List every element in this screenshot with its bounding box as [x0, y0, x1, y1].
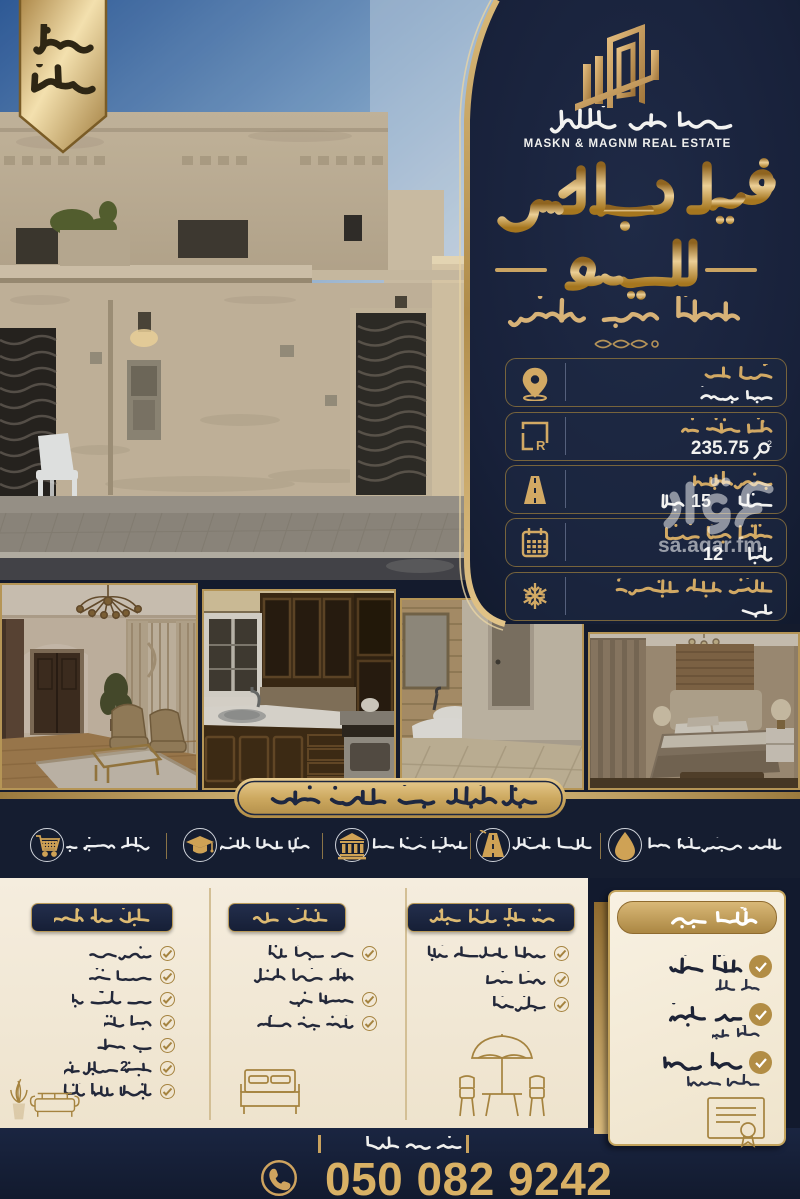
- svg-text:2: 2: [767, 440, 772, 449]
- svg-text:R: R: [536, 438, 546, 453]
